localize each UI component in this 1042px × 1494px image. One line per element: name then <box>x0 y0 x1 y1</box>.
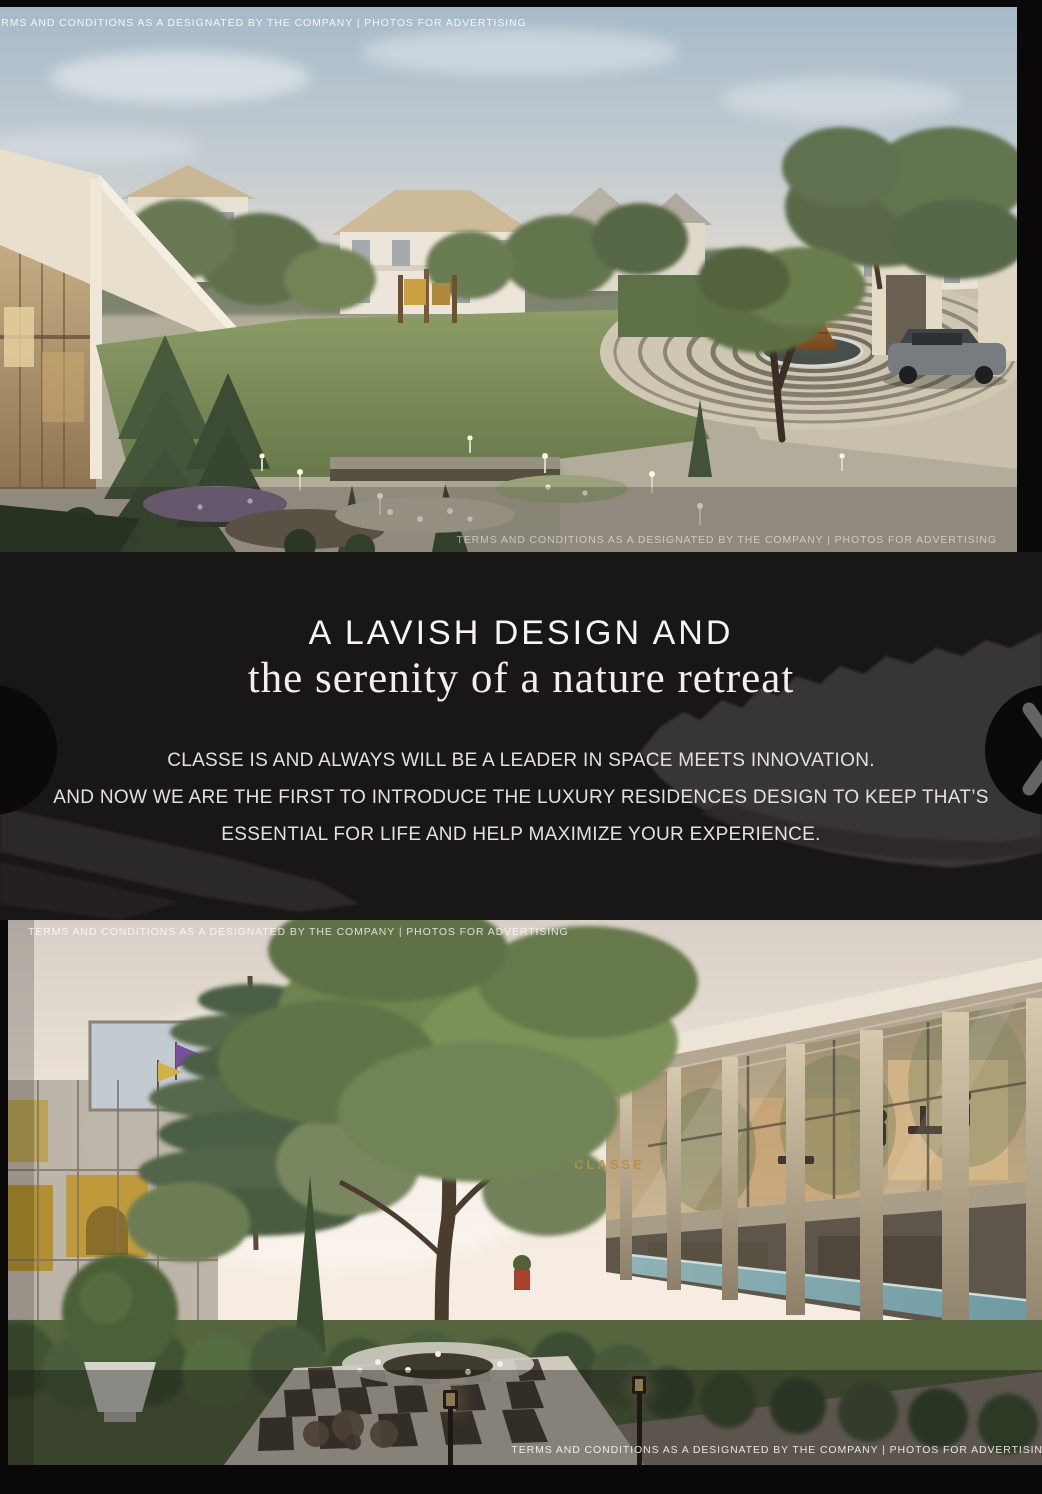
section-subheading: the serenity of a nature retreat <box>0 654 1042 703</box>
landing-page: TERMS AND CONDITIONS AS A DESIGNATED BY … <box>0 0 1042 1494</box>
brush-texture <box>0 552 1042 920</box>
body-line: ESSENTIAL FOR LIFE AND HELP MAXIMIZE YOU… <box>0 816 1042 853</box>
red-planter <box>513 1255 531 1290</box>
section-heading: A LAVISH DESIGN AND <box>0 614 1042 653</box>
hero-image-bottom: CLASSE <box>8 920 1042 1465</box>
body-line: AND NOW WE ARE THE FIRST TO INTRODUCE TH… <box>0 779 1042 816</box>
clubhouse-courtyard-render: CLASSE <box>8 920 1042 1465</box>
disclaimer-text: TERMS AND CONDITIONS AS A DESIGNATED BY … <box>456 534 997 546</box>
hero-image-top: TERMS AND CONDITIONS AS A DESIGNATED BY … <box>0 7 1017 552</box>
disclaimer-text: TERMS AND CONDITIONS AS A DESIGNATED BY … <box>0 17 527 29</box>
body-line: CLASSE IS AND ALWAYS WILL BE A LEADER IN… <box>0 742 1042 779</box>
left-vignette <box>8 920 34 1465</box>
chevron-right-icon <box>1011 701 1042 797</box>
section-body: CLASSE IS AND ALWAYS WILL BE A LEADER IN… <box>0 742 1042 853</box>
classe-signage: CLASSE <box>574 1157 645 1172</box>
message-section: A LAVISH DESIGN AND the serenity of a na… <box>0 552 1042 920</box>
disclaimer-text: TERMS AND CONDITIONS AS A DESIGNATED BY … <box>28 926 569 938</box>
garden-masterplan-render <box>0 7 1017 552</box>
disclaimer-text: TERMS AND CONDITIONS AS A DESIGNATED BY … <box>511 1444 1042 1456</box>
